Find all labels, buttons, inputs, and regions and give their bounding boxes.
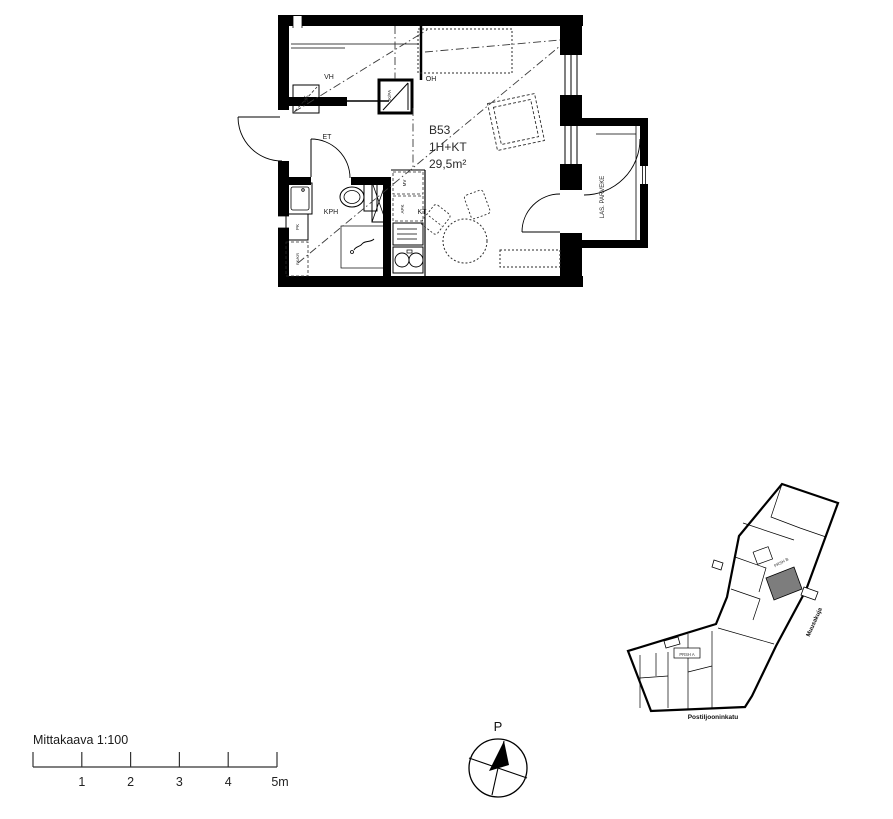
sideboard — [500, 250, 560, 267]
north-label: P — [494, 719, 503, 734]
tick-label: 5m — [271, 775, 288, 789]
appliance-label-apk: APK — [400, 204, 405, 213]
room-label-oh: OH — [426, 76, 437, 83]
scale-bar: Mittakaava 1:100 1 2 3 4 5m — [25, 720, 305, 795]
appliance-label-mv: MV — [402, 180, 407, 187]
bathroom-door — [311, 139, 350, 178]
shower-area — [341, 226, 385, 268]
apartment-id: B53 — [429, 123, 451, 137]
apartment-info: B53 1H+KT 29,5m² — [429, 123, 467, 171]
dining-table — [443, 219, 487, 263]
floor-plan: SK JK/PA — [225, 8, 655, 298]
balcony: LAS. PARVEKE — [582, 118, 648, 248]
north-needle — [489, 741, 509, 771]
scale-tick-labels: 1 2 3 4 5m — [78, 775, 288, 789]
appliance-label-jkpa: JK/PA — [387, 90, 392, 102]
apartment-type: 1H+KT — [429, 140, 467, 154]
staircase-a-label: PRSH A — [679, 652, 695, 657]
room-label-balcony: LAS. PARVEKE — [600, 176, 606, 218]
site-plan: PRSH B PRSH A Muusakuja Postiljooninkatu — [618, 478, 848, 723]
entry-opening — [278, 110, 289, 161]
section-marker-lines — [294, 26, 560, 263]
appliance-label-pk: PK — [295, 224, 300, 230]
room-label-et: ET — [323, 134, 333, 141]
windows — [560, 55, 582, 233]
room-label-sk: SK — [304, 95, 310, 103]
stove — [393, 223, 423, 245]
apartment-area: 29,5m² — [429, 157, 466, 171]
north-compass: P — [455, 705, 545, 805]
site-stub — [712, 560, 723, 570]
street-label-bottom: Postiljooninkatu — [688, 714, 739, 721]
room-label-kph: KPH — [324, 209, 338, 216]
entry-door — [238, 117, 282, 161]
scale-label: Mittakaava 1:100 — [33, 733, 128, 747]
tick-label: 3 — [176, 775, 183, 789]
armchair — [488, 94, 545, 151]
balcony-door — [522, 194, 560, 232]
fridge-freezer: JK/PA — [379, 80, 412, 113]
site-stub — [801, 587, 818, 600]
laundry-machines: PK PK/KR — [286, 214, 308, 276]
drawing-sheet: SK JK/PA — [0, 0, 893, 819]
room-label-kt: KT — [418, 209, 428, 216]
kitchen-sink — [393, 247, 423, 273]
tick-label: 4 — [225, 775, 232, 789]
scale-ticks — [33, 752, 277, 767]
kt-leader-line — [429, 216, 442, 226]
tick-label: 2 — [127, 775, 134, 789]
chair — [463, 189, 490, 219]
interior-walls — [278, 97, 391, 276]
tick-label: 1 — [78, 775, 85, 789]
closet-rod — [291, 44, 419, 48]
bathroom-sink — [288, 183, 312, 214]
toilet — [340, 184, 377, 211]
room-label-vh: VH — [324, 74, 334, 81]
appliance-label-pkkr: PK/KR — [295, 253, 300, 265]
kitchen-counter: MV APK — [391, 170, 425, 276]
street-label-side: Muusakuja — [806, 606, 824, 637]
